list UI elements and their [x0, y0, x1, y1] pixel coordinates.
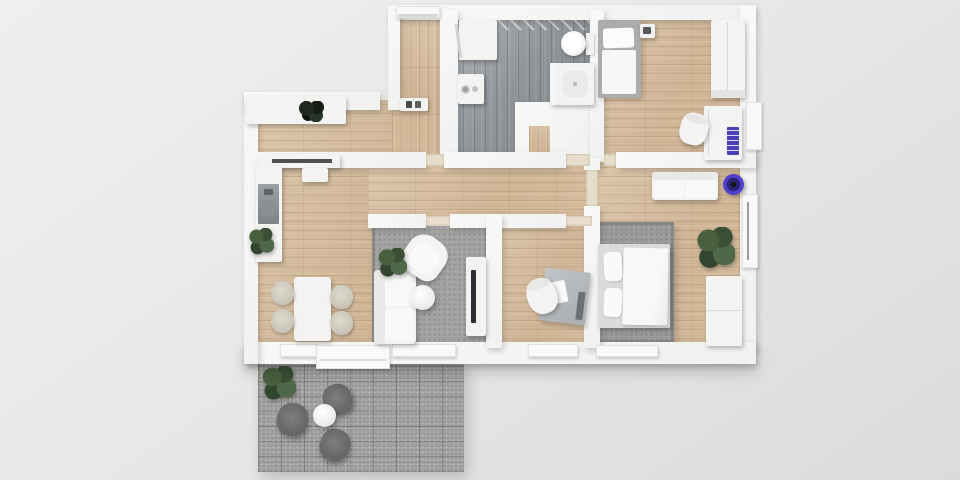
- shoes: [415, 101, 421, 108]
- window-sill: [280, 344, 318, 357]
- entry-door: [396, 6, 440, 18]
- sofa-backrest: [652, 172, 718, 180]
- washer-door: [461, 85, 470, 94]
- terrace-door-step: [316, 345, 390, 369]
- vanity-pillar: [550, 63, 556, 105]
- pillow: [603, 288, 622, 318]
- bed-master: [598, 244, 670, 328]
- floor-plan-canvas: [0, 0, 960, 480]
- sofa-cushion: [385, 273, 413, 306]
- washing-machine: [458, 74, 484, 104]
- dresser: [706, 276, 742, 346]
- door-handle: [747, 202, 749, 260]
- office-books: [575, 292, 585, 321]
- toilet: [561, 30, 595, 58]
- window-sill: [596, 345, 658, 357]
- wall-living-a: [368, 214, 426, 228]
- wall-office-left: [486, 214, 502, 348]
- bathroom-entry-nook: [515, 102, 590, 154]
- glass-door-right: [742, 194, 758, 268]
- dresser-seam: [708, 310, 740, 311]
- door-threshold-living: [426, 216, 450, 226]
- window-sill: [528, 344, 578, 357]
- desk-books-purple: [727, 127, 739, 155]
- nightstand: [640, 24, 655, 38]
- sink-basin: [262, 200, 274, 216]
- toilet-bowl: [561, 31, 586, 56]
- sofa-cushion: [686, 180, 716, 198]
- kitchen-plant: [249, 228, 274, 255]
- duvet: [622, 248, 668, 326]
- window-sill-right: [746, 102, 762, 150]
- desk-bedroom: [704, 106, 742, 160]
- bed-single: [598, 20, 641, 98]
- duvet: [602, 50, 636, 94]
- wall-hall-b: [444, 152, 566, 168]
- sofa-cushion: [385, 308, 413, 341]
- door-threshold-master: [586, 170, 598, 206]
- nightstand-item: [643, 27, 651, 34]
- wall-living-b: [450, 214, 566, 228]
- vanity: [550, 63, 594, 105]
- kitchen-counter-plant: [298, 101, 326, 122]
- plant-master: [697, 227, 735, 269]
- desk-shelf-line: [708, 110, 709, 156]
- door-threshold-bedroom-top: [604, 154, 616, 166]
- window-sill: [392, 344, 456, 357]
- toilet-tank: [586, 33, 594, 55]
- hall-sideboard: [302, 168, 328, 182]
- counter-dark-edge: [272, 159, 332, 163]
- door-threshold-bathroom: [566, 154, 590, 166]
- pillow: [603, 27, 635, 48]
- entry-door-leaf: [398, 14, 438, 17]
- tv-console: [466, 257, 486, 336]
- door-threshold-corridor: [426, 154, 444, 166]
- coffee-table: [410, 285, 435, 310]
- wardrobe: [711, 20, 745, 98]
- drain: [573, 82, 577, 86]
- plant-living: [378, 248, 407, 277]
- kitchen-counter: [246, 96, 346, 124]
- sink: [562, 71, 588, 97]
- terrace-plant: [262, 366, 296, 400]
- sofa-cushion: [654, 180, 684, 198]
- entry-bench: [400, 98, 428, 111]
- sofa-backrest: [374, 270, 385, 344]
- pillow: [603, 252, 622, 282]
- wardrobe-seam: [727, 22, 728, 94]
- sofa-living: [374, 270, 416, 344]
- dining-table: [294, 277, 331, 341]
- wall-entry-left: [388, 12, 400, 110]
- floor-lamp-purple: [723, 174, 744, 195]
- armchair-seat: [404, 239, 443, 278]
- door-threshold-office: [566, 216, 592, 226]
- shower-cabinet: [459, 20, 497, 60]
- sofa-master: [652, 172, 718, 200]
- terrace-table: [313, 404, 336, 427]
- faucet: [264, 189, 273, 195]
- washer-knob: [472, 86, 478, 92]
- tv-screen: [471, 270, 476, 323]
- kitchen-sink-unit: [258, 184, 279, 224]
- terrace-door-line: [320, 359, 386, 361]
- shoes: [406, 101, 412, 108]
- wardrobe-edge: [711, 90, 745, 98]
